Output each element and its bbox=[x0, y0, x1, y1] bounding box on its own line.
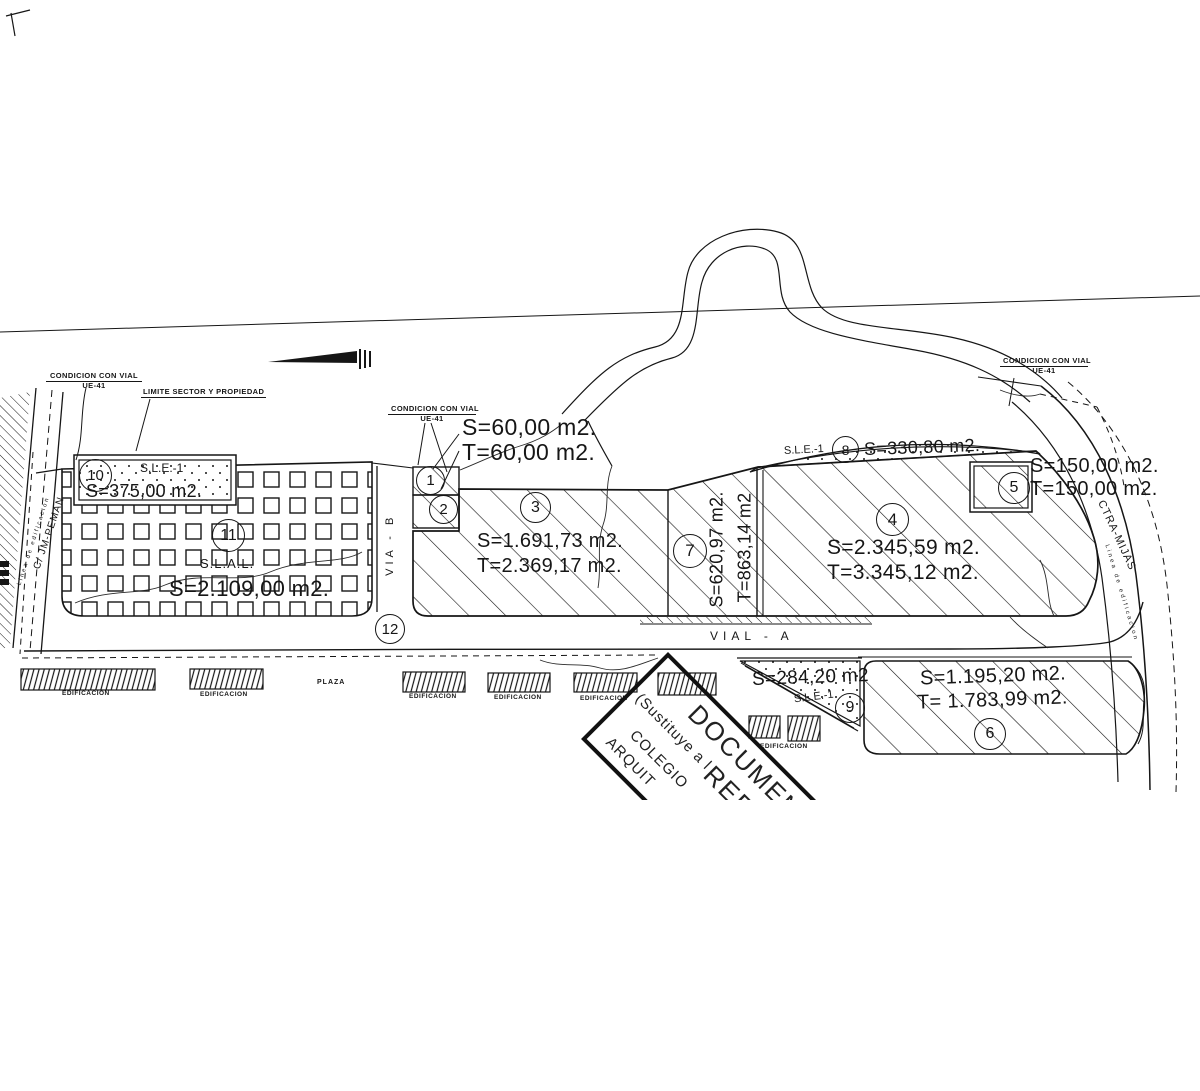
stamp-clip-region: DOCUMENT (Sustituye a l REFO COLEGIO ARQ… bbox=[0, 0, 1200, 800]
plan-sheet: CONDICION CON VIAL UE-41 LIMITE SECTOR Y… bbox=[0, 0, 1200, 1091]
official-stamp: DOCUMENT (Sustituye a l REFO COLEGIO ARQ… bbox=[581, 652, 893, 800]
